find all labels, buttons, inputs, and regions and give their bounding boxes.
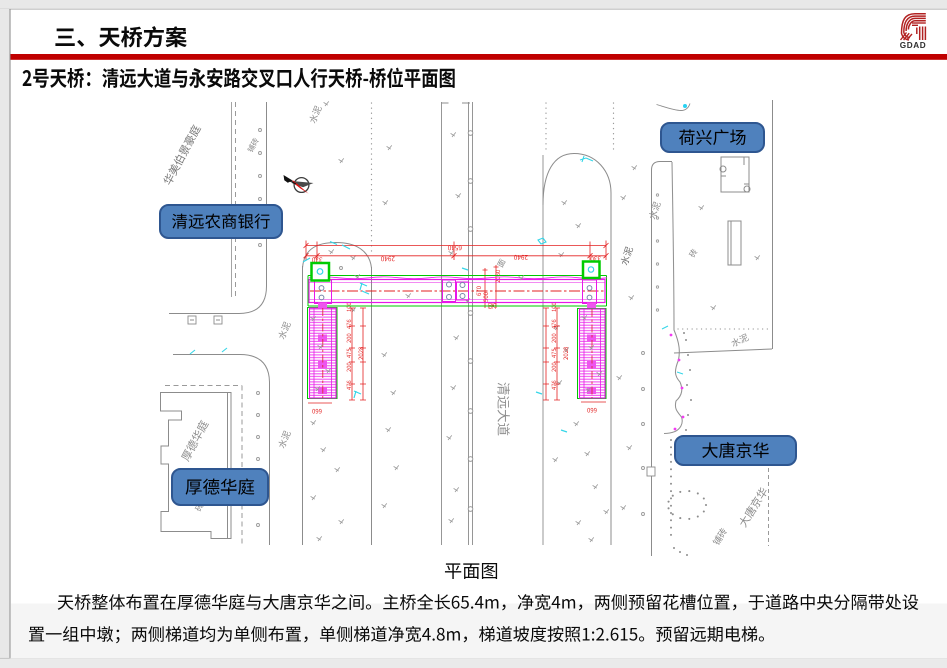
svg-text:GDAD: GDAD: [900, 41, 927, 50]
